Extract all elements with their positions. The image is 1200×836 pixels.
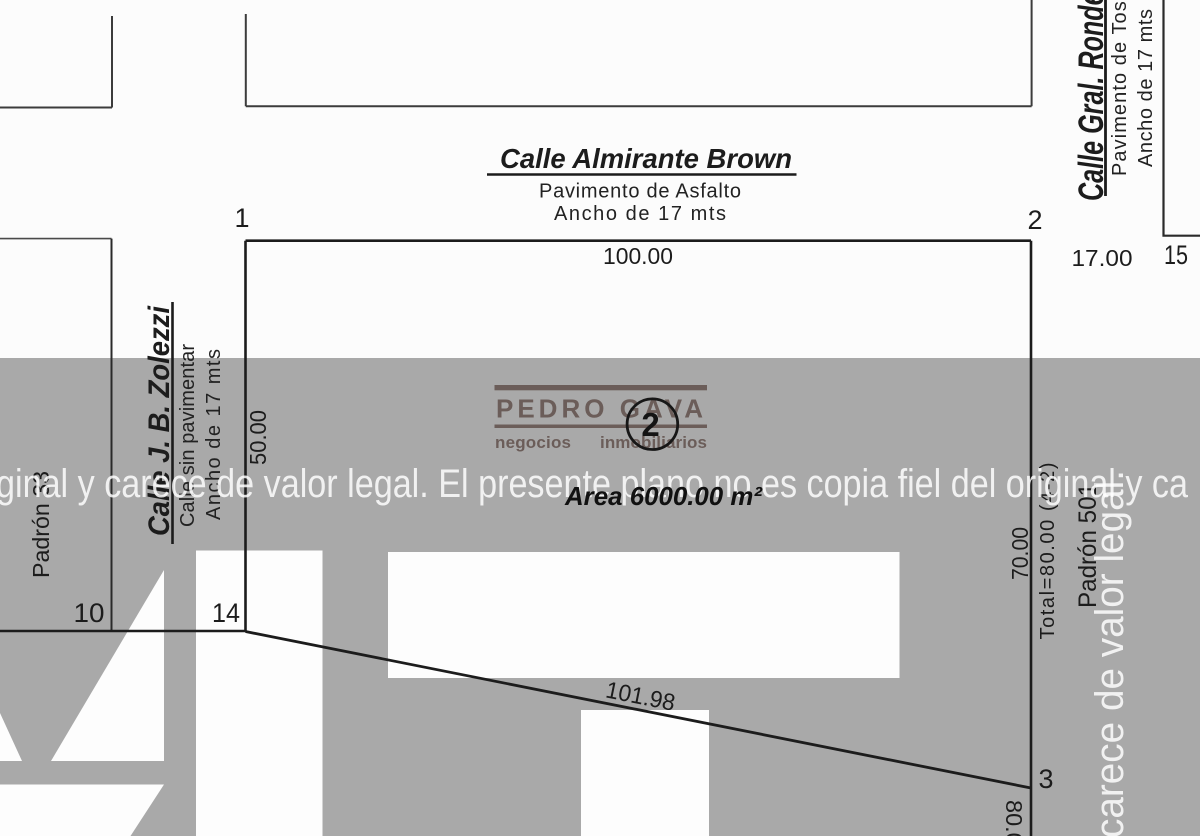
svg-text:50.00: 50.00 [245,410,271,465]
svg-text:1: 1 [234,203,249,233]
svg-text:3: 3 [1038,764,1053,794]
svg-text:Calle Almirante Brown: Calle Almirante Brown [500,143,792,174]
svg-text:Ancho de 17 mts: Ancho de 17 mts [1135,9,1157,167]
svg-text:Pavimento de Asfalto: Pavimento de Asfalto [539,181,741,203]
svg-text:70.00: 70.00 [1007,527,1033,580]
svg-text:Ancho de 17 mts: Ancho de 17 mts [554,203,726,225]
svg-text:Area 6000.00 m²: Area 6000.00 m² [564,481,763,511]
svg-text:10: 10 [74,598,105,628]
svg-text:17.00: 17.00 [1072,245,1133,271]
svg-text:negocios: negocios [495,433,571,452]
svg-text:2: 2 [1027,205,1042,235]
svg-text:15: 15 [1164,240,1188,270]
svg-text:2: 2 [641,406,659,443]
svg-text:80.00: 80.00 [1001,800,1027,836]
svg-text:14: 14 [212,598,240,628]
svg-text:100.00: 100.00 [603,243,673,269]
svg-text:Pavimento de Tosca: Pavimento de Tosca [1109,0,1131,176]
svg-text:carece de valor legal.: carece de valor legal. [1088,470,1132,836]
